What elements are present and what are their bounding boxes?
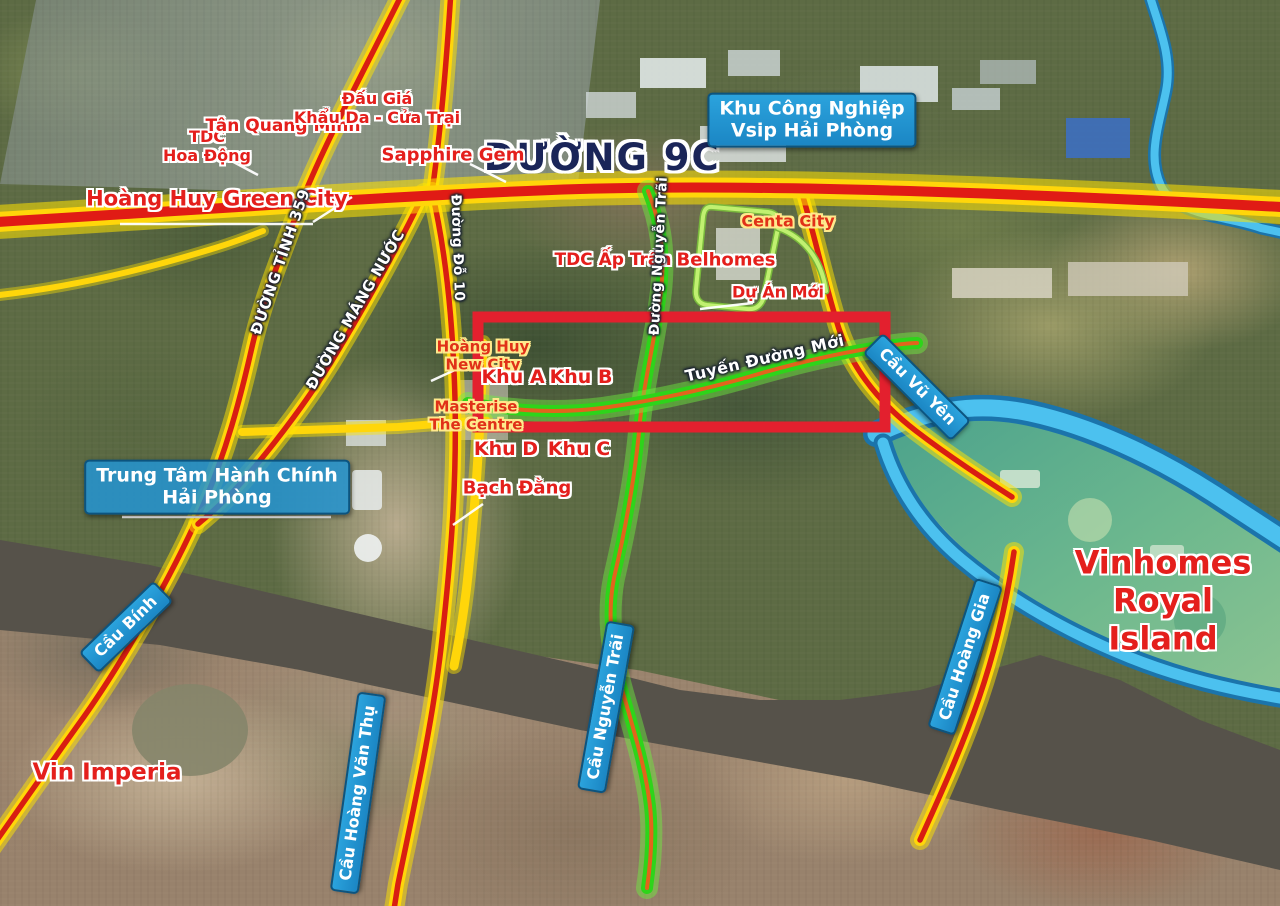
project-vinhomes-royal-island: Vinhomes Royal Island (1075, 544, 1252, 657)
zone-khu-a: Khu A (481, 366, 544, 388)
new-green-roads (468, 191, 917, 888)
admin-center-label: Trung Tâm Hành Chính Hải Phòng (84, 460, 350, 515)
project-masterise-the-centre: Masterise The Centre (430, 398, 523, 433)
zone-khu-d: Khu D (474, 438, 538, 460)
blue-factory (1066, 118, 1130, 158)
vsip-industrial-zone-label: Khu Công Nghiệp Vsip Hải Phòng (707, 93, 916, 148)
project-sapphire-gem: Sapphire Gem (382, 144, 525, 165)
zone-khu-b: Khu B (550, 366, 613, 388)
project-centa-city: Centa City (741, 213, 834, 232)
project-dau-gia-khau-da: Đấu Giá Khẩu Da - Cửa Trại (294, 90, 460, 128)
project-bach-dang: Bạch Đằng (463, 477, 572, 498)
project-vin-imperia: Vin Imperia (33, 759, 182, 786)
project-du-an-moi: Dự Án Mới (732, 284, 824, 303)
zone-khu-c: Khu C (548, 438, 610, 460)
admin-tower (354, 534, 382, 562)
project-belhomes: Belhomes (677, 249, 776, 270)
map-canvas: ĐƯỜNG 9C Khu Công Nghiệp Vsip Hải Phòng … (0, 0, 1280, 906)
